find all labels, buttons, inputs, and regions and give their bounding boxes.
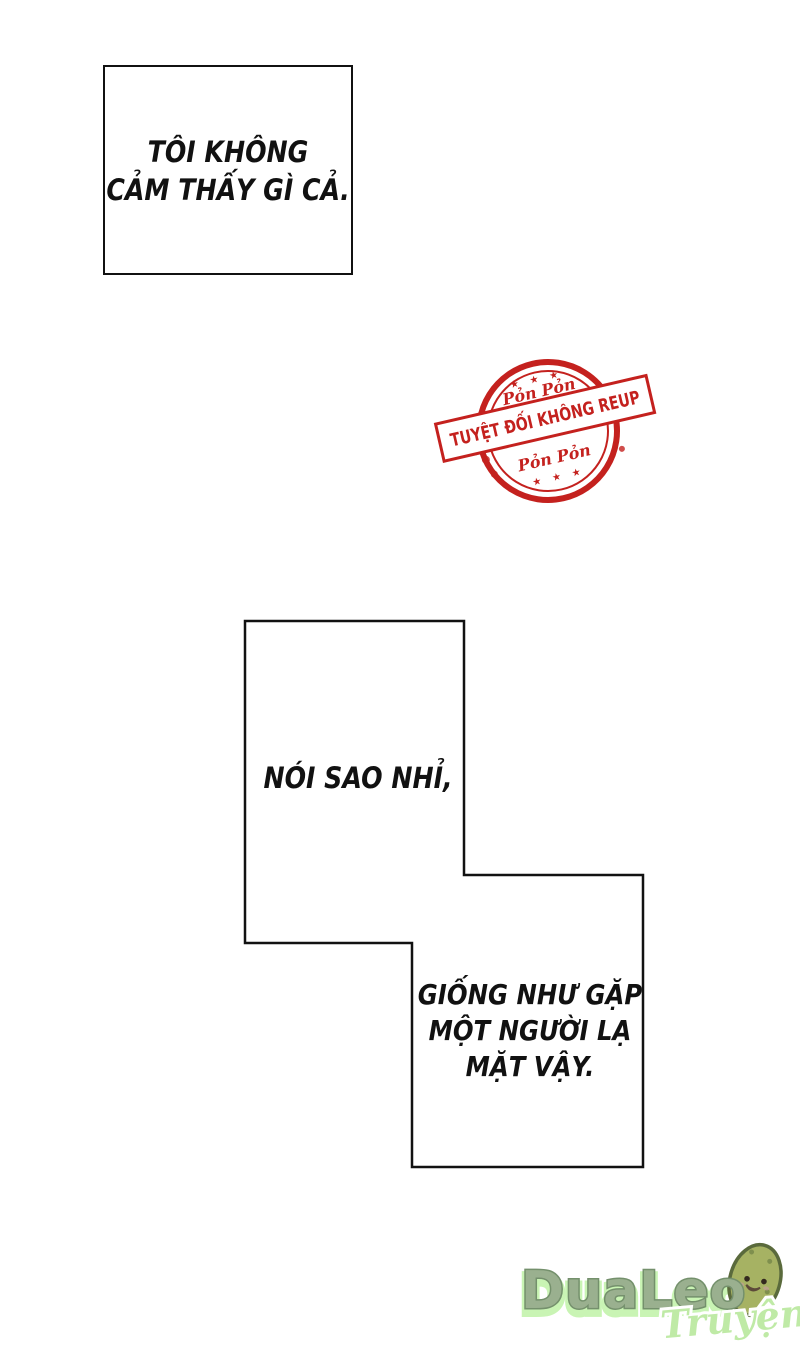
speech-text-top: TÔI KHÔNG CẢM THẤY GÌ CẢ. [106, 133, 349, 209]
anti-reup-stamp: ★ ★ ★ Pỏn Pỏn TUYỆT ĐỐI KHÔNG REUP Pỏn P… [428, 348, 668, 516]
speech-text-top-line2: CẢM THẤY GÌ CẢ. [106, 171, 349, 209]
speech-text-bottom-line3: MẶT VẬY. [418, 1049, 642, 1085]
speech-text-middle: NÓI SAO NHỈ, [263, 759, 452, 797]
comic-page: TÔI KHÔNG CẢM THẤY GÌ CẢ. ★ ★ ★ Pỏn Pỏn … [0, 0, 800, 1350]
speech-text-top-line1: TÔI KHÔNG [106, 133, 349, 171]
speech-text-bottom-line2: MỘT NGƯỜI LẠ [418, 1013, 642, 1049]
speech-text-middle-line: NÓI SAO NHỈ, [263, 761, 452, 795]
speech-panel-compound [225, 600, 665, 1185]
scanlation-logo: DuaLeo DuaLeo Truyện [512, 1232, 800, 1350]
speech-text-bottom-line1: GIỐNG NHƯ GẶP [418, 977, 642, 1013]
speech-text-bottom: GIỐNG NHƯ GẶP MỘT NGƯỜI LẠ MẶT VẬY. [418, 977, 642, 1085]
speech-panel-compound-outline [245, 621, 643, 1167]
